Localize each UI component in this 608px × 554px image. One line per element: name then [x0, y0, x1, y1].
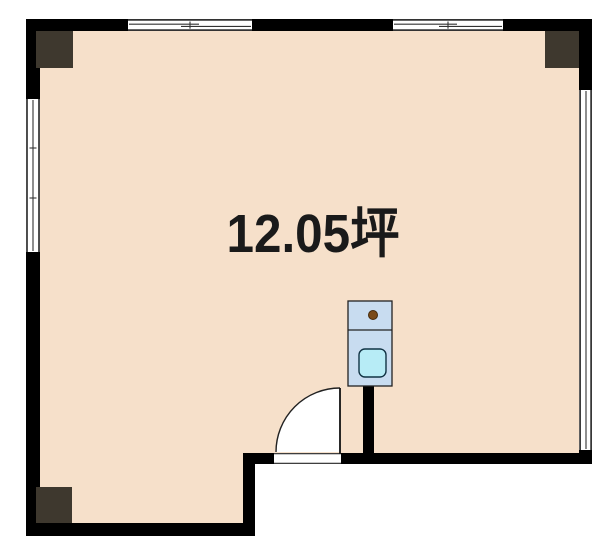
pillar-top-right [545, 31, 579, 68]
floor-plan: 12.05坪 [0, 0, 608, 554]
wall-top [26, 19, 592, 31]
area-label: 12.05坪 [227, 204, 400, 264]
door-threshold [274, 453, 341, 464]
wall-partition-stub [363, 386, 374, 453]
window-left [27, 99, 40, 252]
faucet-knob-icon [369, 311, 378, 320]
pillar-bottom-left [36, 487, 72, 523]
sink-unit [348, 301, 392, 386]
wall-bottom-left [26, 523, 255, 536]
pillar-top-left [36, 31, 73, 68]
window-right [580, 90, 592, 450]
sink-basin [359, 349, 386, 377]
window-top-right [393, 20, 503, 31]
window-top-left [128, 20, 252, 31]
wall-left [26, 19, 40, 536]
